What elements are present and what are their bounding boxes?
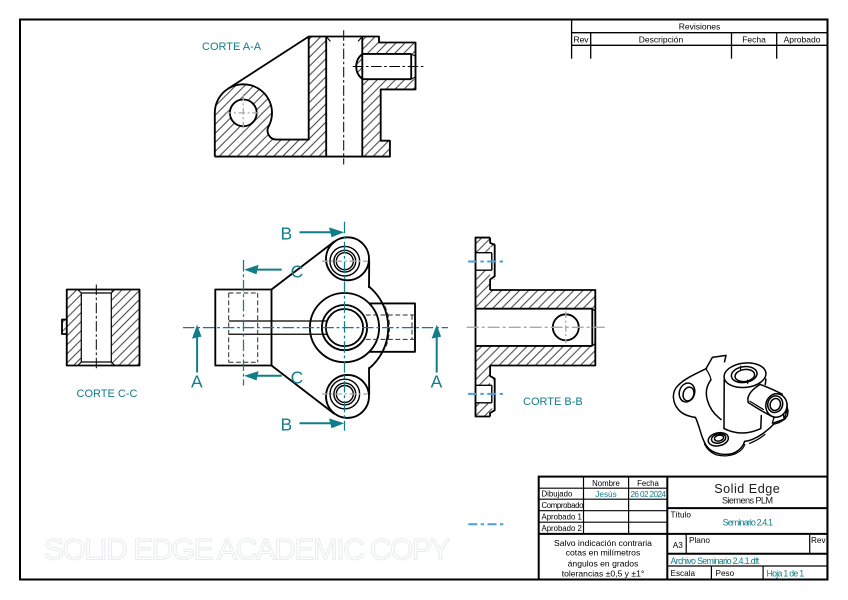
svg-text:CORTE A-A: CORTE A-A [202, 41, 262, 53]
svg-text:Archivo Seminario 2.4.1.dft: Archivo Seminario 2.4.1.dft [671, 556, 760, 566]
svg-text:Escala: Escala [671, 569, 696, 578]
svg-text:Dibujado: Dibujado [542, 490, 573, 499]
svg-text:Hoja 1 de 1: Hoja 1 de 1 [767, 568, 805, 578]
svg-text:Seminario 2.4.1: Seminario 2.4.1 [723, 517, 773, 527]
svg-text:Fecha: Fecha [637, 479, 659, 488]
svg-text:Plano: Plano [689, 536, 710, 545]
svg-text:A3: A3 [673, 541, 683, 550]
svg-text:Peso: Peso [716, 569, 735, 578]
svg-text:Rev: Rev [811, 536, 826, 545]
svg-text:Aprobado 1: Aprobado 1 [542, 513, 582, 522]
svg-text:Rev: Rev [573, 34, 589, 44]
svg-text:SOLID EDGE ACADEMIC COPY: SOLID EDGE ACADEMIC COPY [44, 534, 450, 567]
svg-text:Nombre: Nombre [592, 479, 620, 488]
svg-text:A: A [431, 371, 443, 391]
svg-text:Revisiones: Revisiones [679, 22, 721, 32]
svg-text:cotas en milímetros: cotas en milímetros [566, 548, 641, 558]
svg-text:Fecha: Fecha [742, 34, 766, 44]
svg-text:Descripción: Descripción [639, 34, 684, 44]
svg-text:CORTE B-B: CORTE B-B [523, 396, 583, 408]
svg-text:C: C [291, 368, 304, 388]
svg-text:Solid Edge: Solid Edge [714, 482, 781, 496]
svg-text:Siemens PLM: Siemens PLM [722, 496, 773, 506]
svg-text:Jesús: Jesús [595, 490, 616, 499]
svg-text:B: B [280, 414, 292, 434]
svg-text:A: A [191, 371, 203, 391]
svg-text:Aprobado 2: Aprobado 2 [542, 524, 582, 533]
svg-text:tolerancias ±0,5 y ±1°: tolerancias ±0,5 y ±1° [562, 569, 645, 579]
svg-text:ángulos en grados: ángulos en grados [568, 558, 639, 568]
svg-text:CORTE C-C: CORTE C-C [77, 388, 138, 400]
svg-text:C: C [291, 261, 304, 281]
svg-text:B: B [280, 223, 292, 243]
svg-text:Salvo indicación contraria: Salvo indicación contraria [554, 538, 652, 548]
svg-text:Aprobado: Aprobado [784, 34, 821, 44]
svg-text:26 02 2024: 26 02 2024 [630, 490, 666, 499]
svg-text:Comprobado: Comprobado [542, 501, 585, 510]
svg-text:Título: Título [671, 510, 692, 519]
